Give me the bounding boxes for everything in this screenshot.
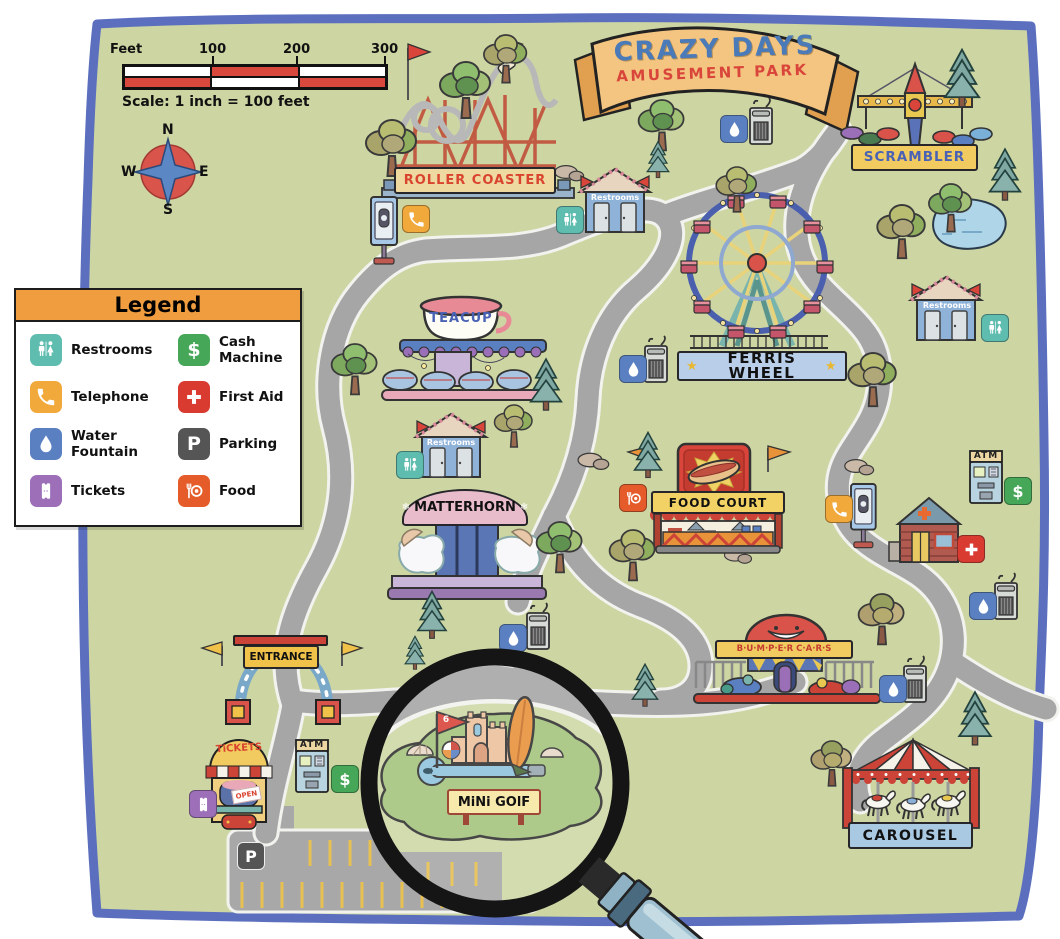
legend: Legend Restrooms $ Cash Machine Telephon… — [14, 288, 302, 527]
sign-carousel: CAROUSEL — [848, 822, 973, 849]
scale-bar-graphic — [122, 64, 388, 90]
first-aid-icon — [957, 535, 985, 563]
sign-roller-coaster: ROLLER COASTER — [394, 167, 556, 194]
legend-item-food: Food — [178, 475, 292, 507]
tickets-icon — [30, 475, 62, 507]
compass-e: E — [199, 165, 209, 179]
snowflake-icon: ❄ — [520, 503, 528, 513]
first-aid-icon — [178, 381, 210, 413]
sign-bumper-cars: B·U·M·P·E·R C·A·R·S — [715, 640, 853, 659]
restrooms-icon — [981, 314, 1009, 342]
scale-tick-100: 100 — [199, 42, 226, 57]
atm-label: ATM — [970, 452, 1002, 461]
water-fountain-icon — [30, 428, 62, 460]
parking-icon: P — [237, 842, 265, 870]
restrooms-building-label: Restrooms — [586, 194, 644, 202]
sign-food-court: FOOD COURT — [651, 491, 785, 514]
food-icon — [619, 484, 647, 512]
sign-mini-golf: MiNi GOlF — [447, 789, 541, 815]
amusement-park-map: CRAZY DAYS AMUSEMENT PARK Feet 100 200 3… — [0, 0, 1060, 939]
cash-machine-icon: $ — [331, 765, 359, 793]
compass-s: S — [163, 203, 173, 217]
scale-caption: Scale: 1 inch = 100 feet — [122, 95, 322, 109]
water-fountain-icon — [499, 624, 527, 652]
sign-teacup: TEACUP — [425, 312, 497, 325]
telephone-icon — [30, 381, 62, 413]
scale-tick-200: 200 — [283, 42, 310, 57]
restrooms-icon — [556, 206, 584, 234]
water-fountain-icon — [969, 592, 997, 620]
atm-label: ATM — [296, 741, 328, 750]
water-fountain-icon — [720, 115, 748, 143]
legend-item-telephone: Telephone — [30, 381, 178, 413]
snowflake-icon: ❄ — [402, 503, 410, 513]
scale-unit-label: Feet — [110, 42, 142, 57]
legend-item-parking: P Parking — [178, 428, 292, 460]
cash-machine-icon: $ — [1004, 477, 1032, 505]
legend-title: Legend — [16, 290, 300, 322]
cash-machine-icon: $ — [178, 334, 210, 366]
restrooms-icon — [30, 334, 62, 366]
food-icon — [178, 475, 210, 507]
star-icon: ★ — [825, 360, 838, 373]
legend-item-cash-machine: $ Cash Machine — [178, 334, 292, 366]
parking-icon: P — [178, 428, 210, 460]
mini-golf-sign-leg — [518, 815, 524, 825]
telephone-icon — [825, 495, 853, 523]
star-icon: ★ — [686, 360, 699, 373]
water-fountain-icon — [619, 355, 647, 383]
tickets-icon — [189, 790, 217, 818]
compass-n: N — [162, 123, 174, 137]
sign-entrance: ENTRANCE — [243, 645, 319, 669]
mini-golf-sign-leg — [463, 815, 469, 825]
restrooms-building-label: Restrooms — [422, 439, 480, 447]
restrooms-building-label: Restrooms — [917, 302, 977, 310]
legend-item-first-aid: First Aid — [178, 381, 292, 413]
golf-flag-number: 6 — [438, 716, 454, 725]
scale-tick-300: 300 — [371, 42, 398, 57]
sign-scrambler: SCRAMBLER — [851, 144, 978, 171]
legend-item-tickets: Tickets — [30, 475, 178, 507]
entrance-sign-cap — [233, 635, 328, 646]
legend-item-restrooms: Restrooms — [30, 334, 178, 366]
water-fountain-icon — [879, 675, 907, 703]
sign-ferris-wheel: ★FERRIS WHEEL★ — [677, 351, 847, 381]
legend-item-water-fountain: Water Fountain — [30, 428, 178, 460]
telephone-icon — [402, 205, 430, 233]
restrooms-icon — [396, 451, 424, 479]
compass-w: W — [121, 165, 136, 179]
